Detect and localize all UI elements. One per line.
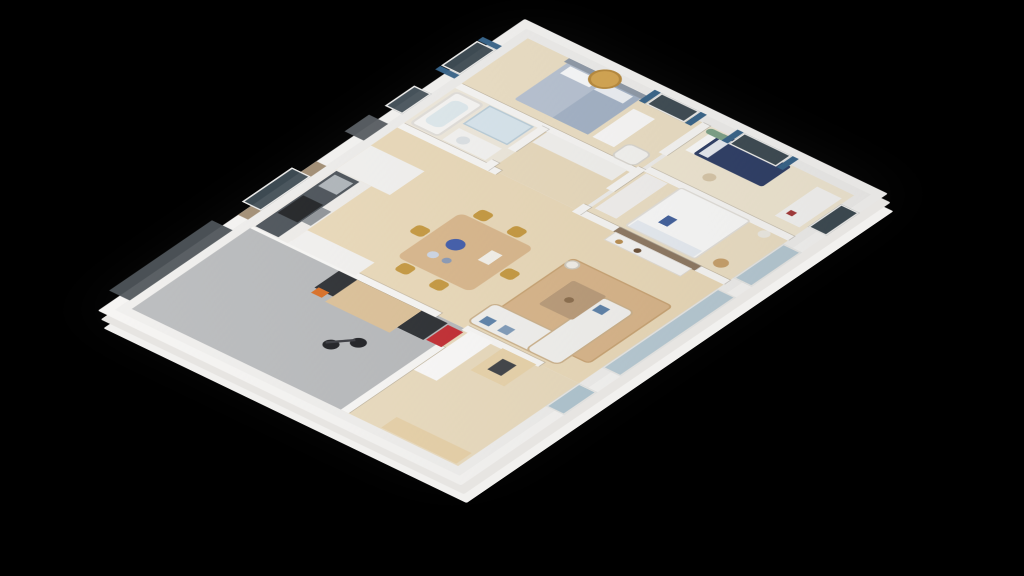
kitchen-window — [242, 167, 311, 210]
layer-doors-windows — [115, 29, 871, 476]
living-sliding-doors — [602, 289, 736, 377]
bedroom2-sliding-door — [733, 244, 802, 287]
office-glass-door — [546, 383, 598, 415]
bedroom3-low-window — [808, 204, 860, 236]
entry-door — [345, 115, 389, 141]
bathroom-window — [385, 86, 432, 115]
garage-door — [109, 220, 233, 300]
house-floor-plan — [98, 19, 888, 486]
floor-plan-viewport — [0, 0, 1024, 576]
